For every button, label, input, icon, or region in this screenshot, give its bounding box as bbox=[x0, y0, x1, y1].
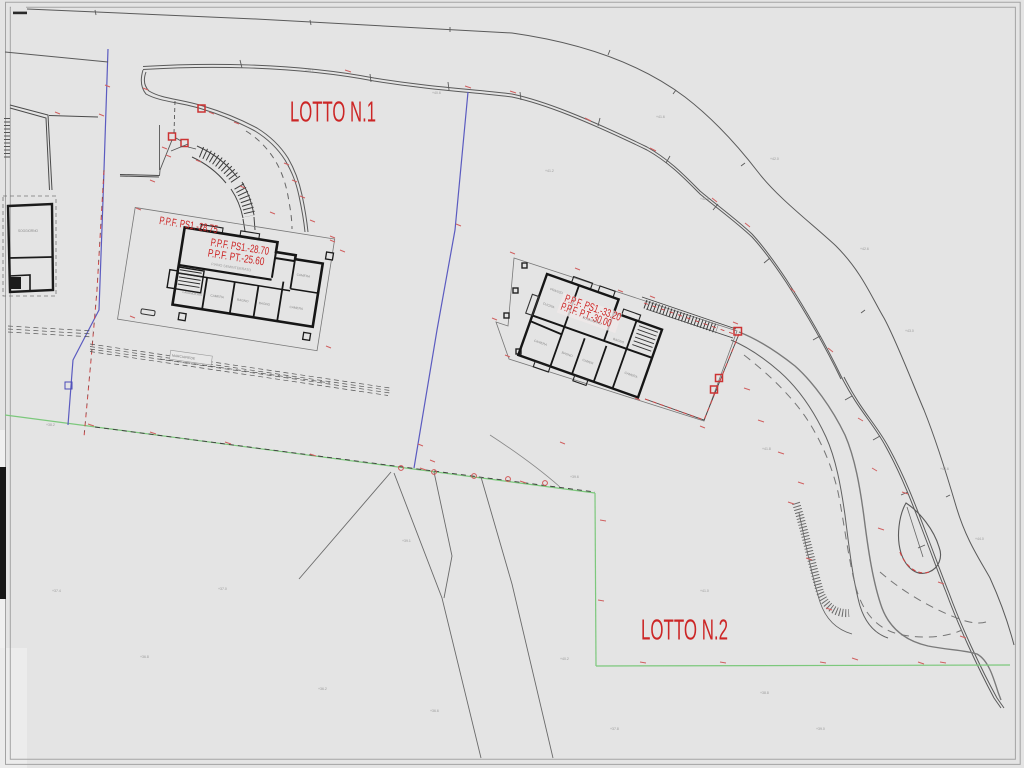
svg-text:+38.8: +38.8 bbox=[760, 691, 769, 695]
svg-text:+41.2: +41.2 bbox=[545, 169, 554, 173]
svg-text:+40.6: +40.6 bbox=[432, 91, 441, 95]
svg-text:+43.0: +43.0 bbox=[905, 329, 914, 333]
svg-text:+37.0: +37.0 bbox=[218, 587, 227, 591]
svg-text:+42.4: +42.4 bbox=[700, 197, 709, 201]
svg-text:+41.8: +41.8 bbox=[762, 447, 771, 451]
svg-text:SOGGIORNO: SOGGIORNO bbox=[18, 229, 39, 233]
svg-text:+37.8: +37.8 bbox=[610, 727, 619, 731]
svg-text:+39.1: +39.1 bbox=[402, 539, 411, 543]
svg-text:+40.2: +40.2 bbox=[560, 657, 569, 661]
svg-text:LOTTO N.1: LOTTO N.1 bbox=[290, 97, 376, 129]
svg-text:+44.0: +44.0 bbox=[975, 537, 984, 541]
svg-text:+36.6: +36.6 bbox=[430, 709, 439, 713]
svg-text:+39.6: +39.6 bbox=[570, 475, 579, 479]
svg-text:+36.8: +36.8 bbox=[140, 655, 149, 659]
svg-text:+36.2: +36.2 bbox=[318, 687, 327, 691]
svg-text:+40.1: +40.1 bbox=[305, 69, 314, 73]
svg-text:+43.6: +43.6 bbox=[940, 467, 949, 471]
svg-text:+37.4: +37.4 bbox=[52, 589, 61, 593]
svg-text:+38.2: +38.2 bbox=[46, 423, 55, 427]
svg-text:+42.0: +42.0 bbox=[770, 157, 779, 161]
svg-text:+41.0: +41.0 bbox=[700, 589, 709, 593]
svg-text:+41.6: +41.6 bbox=[656, 115, 665, 119]
svg-text:LOTTO N.2: LOTTO N.2 bbox=[641, 615, 728, 647]
svg-text:+42.6: +42.6 bbox=[860, 247, 869, 251]
svg-text:+39.0: +39.0 bbox=[816, 727, 825, 731]
